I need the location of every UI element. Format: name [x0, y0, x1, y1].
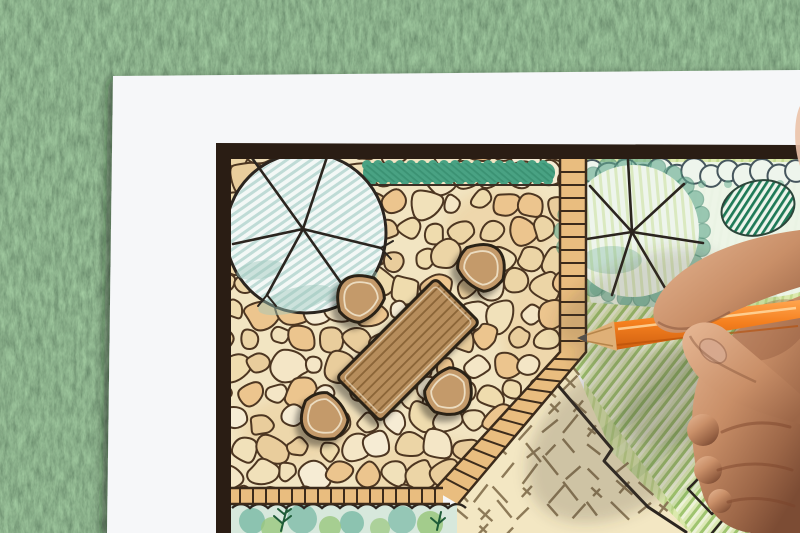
flagstone — [271, 327, 289, 343]
flagstone — [504, 268, 528, 293]
knuckle — [687, 414, 719, 446]
hedge-texture — [363, 163, 555, 182]
flagstone — [288, 326, 314, 351]
flagstone — [518, 247, 544, 271]
flagstone — [251, 415, 274, 434]
hedge-strip — [362, 160, 558, 185]
cloud-shrub — [785, 160, 800, 182]
cloud-shade-dot — [698, 180, 706, 188]
photo-stage: Close-up photo of a hand drawing a backy… — [0, 0, 800, 533]
flagstone — [502, 380, 521, 398]
brick-band-bottom — [228, 488, 443, 504]
flagstone — [320, 327, 343, 352]
flagstone — [518, 193, 543, 216]
flagstone — [247, 353, 270, 372]
cloud-shade-dot — [724, 180, 732, 188]
flagstone — [423, 429, 451, 459]
flagstone — [517, 355, 539, 375]
planting-bed — [231, 504, 466, 533]
photo-canvas — [0, 0, 800, 533]
flagstone — [266, 385, 287, 403]
flagstone — [306, 357, 322, 373]
flagstone — [241, 330, 258, 350]
